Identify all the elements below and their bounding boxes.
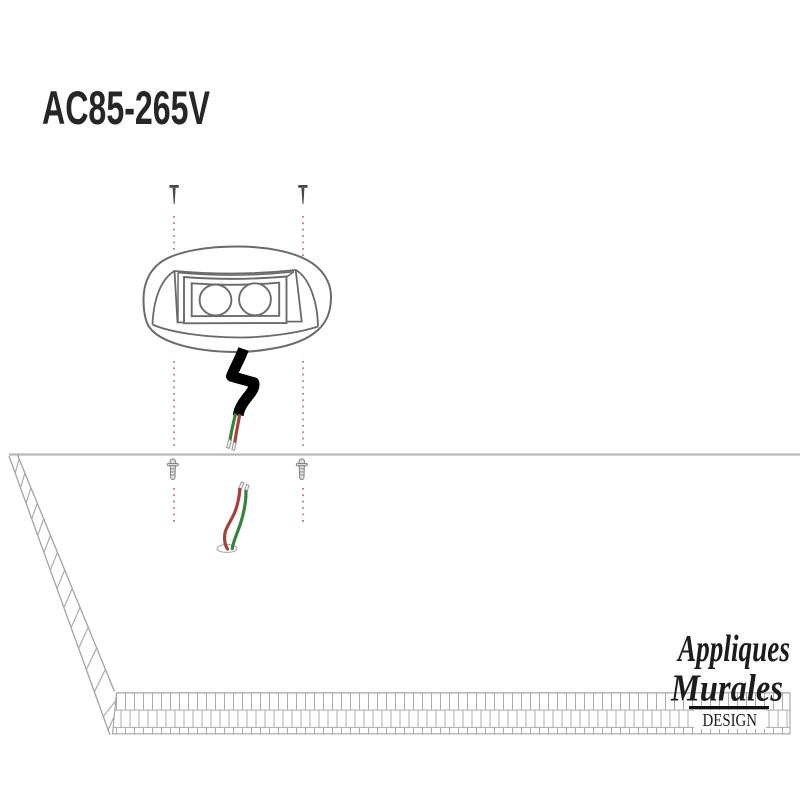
- svg-text:DESIGN: DESIGN: [703, 710, 758, 730]
- svg-text:Murales: Murales: [670, 668, 783, 710]
- svg-text:AC85-265V: AC85-265V: [42, 82, 210, 135]
- svg-text:Appliques: Appliques: [677, 628, 790, 670]
